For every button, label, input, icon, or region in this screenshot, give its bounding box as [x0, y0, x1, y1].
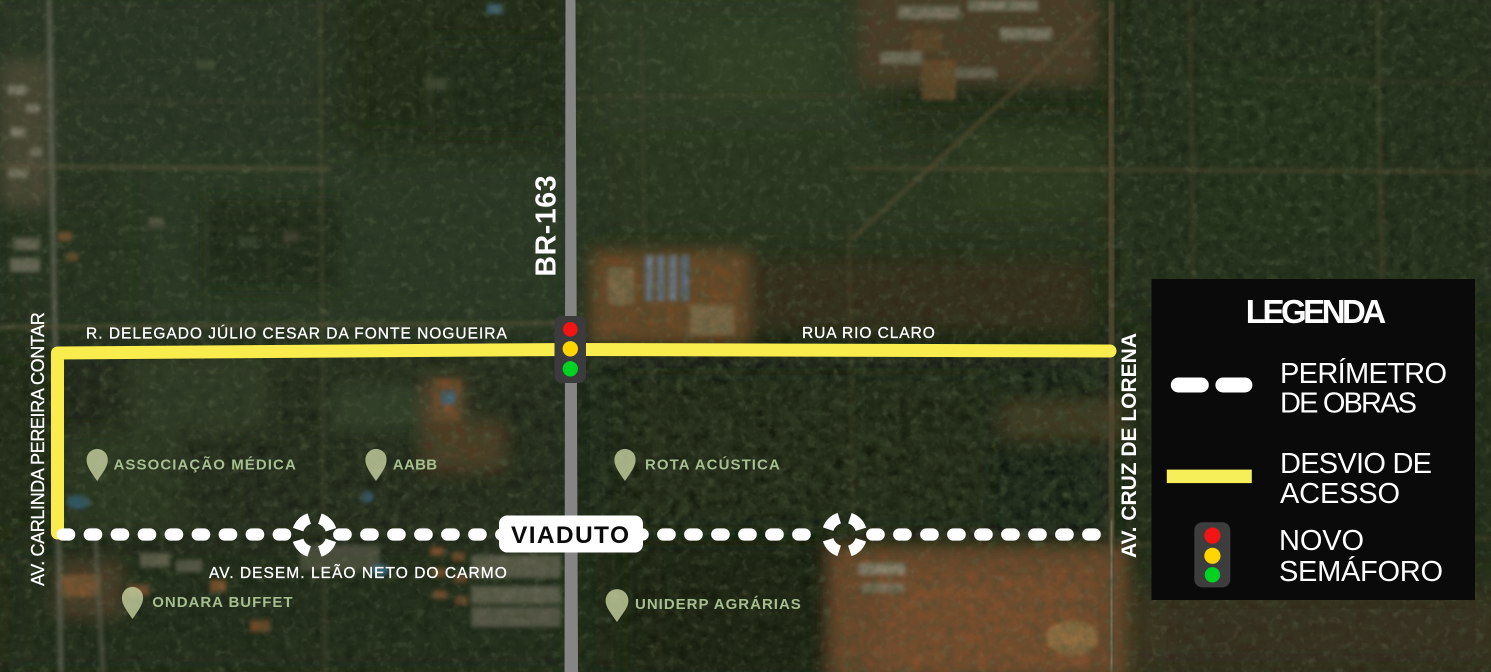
svg-text:ACESSO: ACESSO — [1280, 478, 1401, 510]
svg-text:SEMÁFORO: SEMÁFORO — [1279, 555, 1444, 588]
svg-text:AV. DESEM. LEÃO NETO DO CARMO: AV. DESEM. LEÃO NETO DO CARMO — [209, 565, 508, 582]
svg-text:ONDARA BUFFET: ONDARA BUFFET — [152, 594, 293, 611]
svg-text:ROTA ACÚSTICA: ROTA ACÚSTICA — [645, 456, 781, 474]
svg-text:NOVO: NOVO — [1279, 525, 1365, 557]
svg-text:AV. CARLINDA PEREIRA CONTAR: AV. CARLINDA PEREIRA CONTAR — [28, 312, 48, 586]
svg-text:ASSOCIAÇÃO MÉDICA: ASSOCIAÇÃO MÉDICA — [114, 456, 298, 474]
svg-text:RUA RIO CLARO: RUA RIO CLARO — [802, 325, 936, 342]
svg-text:AV. CRUZ DE LORENA: AV. CRUZ DE LORENA — [1118, 333, 1141, 558]
svg-text:PERÍMETRO: PERÍMETRO — [1280, 357, 1448, 390]
svg-text:LEGENDA: LEGENDA — [1246, 293, 1388, 330]
svg-text:R. DELEGADO JÚLIO CESAR DA FON: R. DELEGADO JÚLIO CESAR DA FONTE NOGUEIR… — [86, 326, 508, 343]
svg-text:UNIDERP AGRÁRIAS: UNIDERP AGRÁRIAS — [635, 596, 802, 613]
svg-text:BR-163: BR-163 — [531, 176, 563, 277]
svg-text:DESVIO DE: DESVIO DE — [1280, 448, 1433, 480]
svg-text:VIADUTO: VIADUTO — [511, 522, 631, 549]
svg-text:DE OBRAS: DE OBRAS — [1280, 387, 1418, 419]
svg-text:AABB: AABB — [393, 457, 439, 474]
